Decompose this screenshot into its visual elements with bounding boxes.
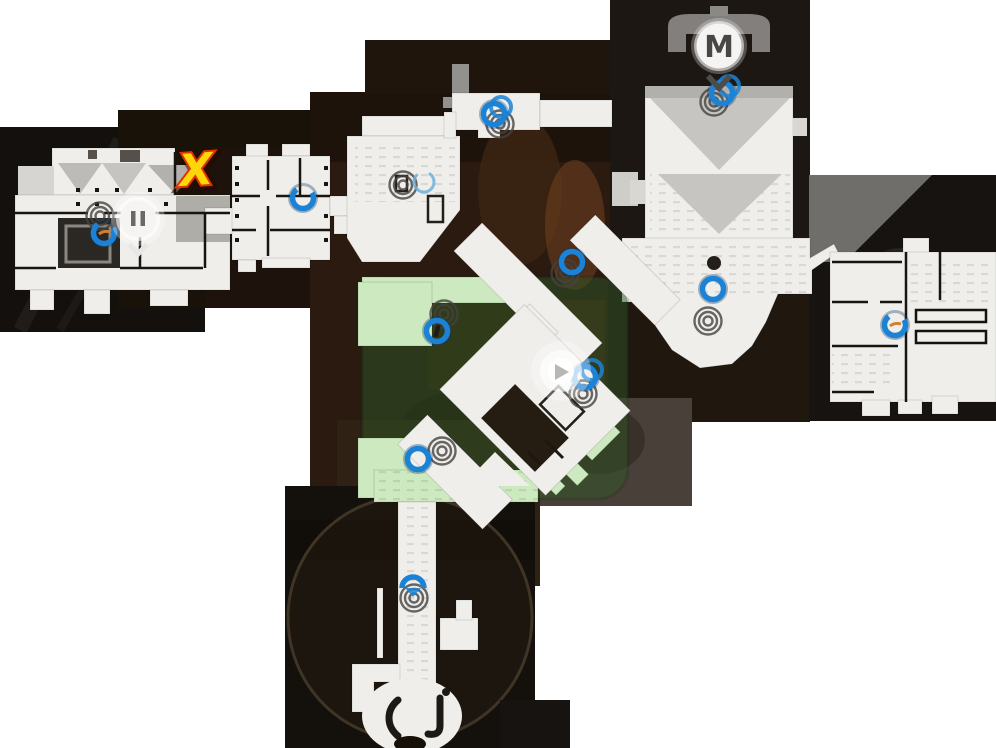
overhead-map: MXX — [0, 0, 996, 748]
building-east — [830, 238, 996, 416]
svg-text:X: X — [174, 144, 216, 198]
game-map-screen: MXX — [0, 0, 996, 748]
metro-pin-label: M — [704, 30, 734, 65]
player-marker — [531, 341, 591, 401]
map-dot — [707, 256, 721, 270]
x-objective-marker[interactable]: XX — [174, 144, 219, 200]
item-marker-blue[interactable] — [424, 318, 451, 345]
